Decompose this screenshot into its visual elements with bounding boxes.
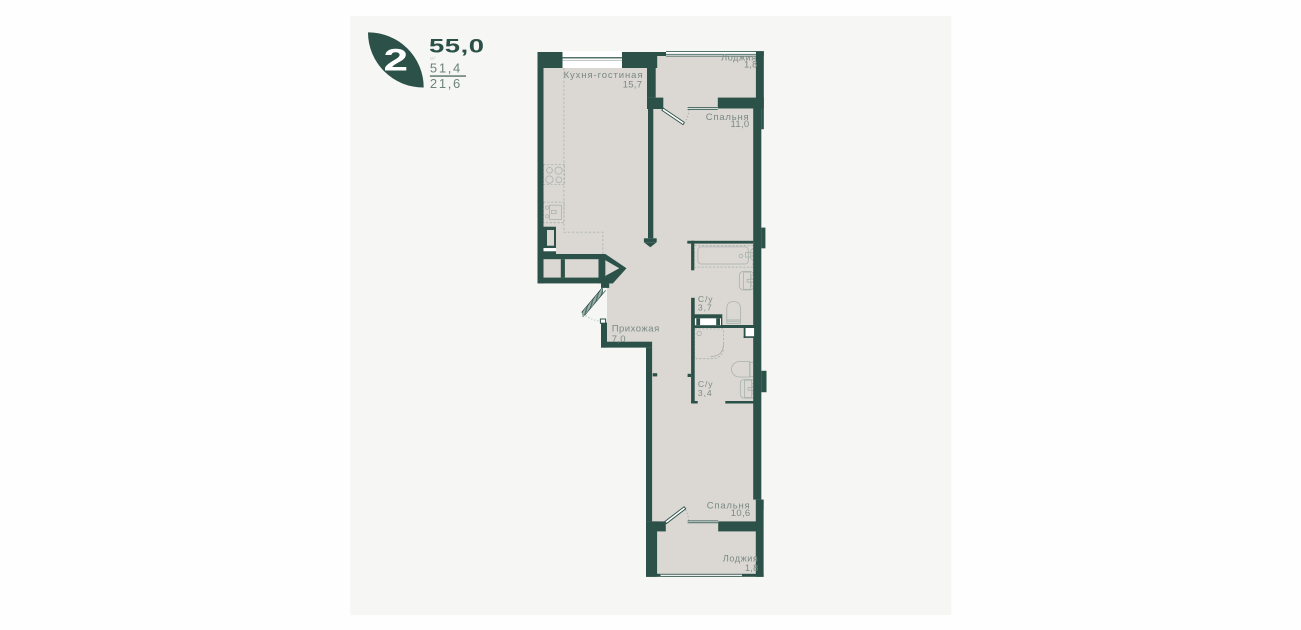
svg-text:55,0: 55,0 [429,36,485,57]
svg-text:15,7: 15,7 [623,79,643,90]
svg-text:3,4: 3,4 [698,388,713,398]
svg-text:2: 2 [384,43,409,78]
svg-text:11,0: 11,0 [731,119,750,130]
svg-text:10,6: 10,6 [731,508,751,519]
svg-text:3,7: 3,7 [698,303,713,313]
svg-text:7,0: 7,0 [612,334,626,345]
svg-text:1,8: 1,8 [745,563,758,573]
svg-text:1,8: 1,8 [744,60,757,70]
svg-text:21,6: 21,6 [430,76,462,91]
svg-text:51,4: 51,4 [430,61,462,76]
